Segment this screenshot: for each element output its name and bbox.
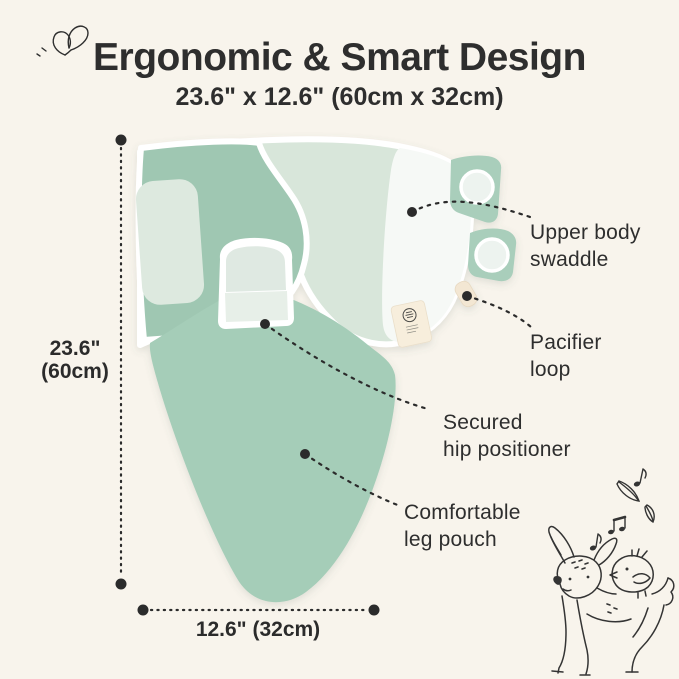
dot-hip — [260, 319, 270, 329]
hip-tab-velcro-patch — [225, 291, 288, 322]
page-title: Ergonomic & Smart Design — [0, 36, 679, 80]
callout-secured-hip-positioner: Secured hip positioner — [443, 409, 571, 463]
callout-comfortable-leg-pouch: Comfortable leg pouch — [404, 499, 521, 553]
dot-upper-body — [407, 207, 417, 217]
fastening-snap-bottom — [476, 239, 508, 271]
wing-velcro-patch — [135, 178, 205, 306]
height-dimension-label: 23.6" (60cm) — [24, 337, 126, 383]
music-notes-icon — [589, 469, 654, 551]
callout-pacifier-loop: Pacifier loop — [530, 329, 602, 383]
dot-pouch — [300, 449, 310, 459]
fastening-snap-top — [461, 171, 493, 203]
width-dimension-label: 12.6" (32cm) — [133, 618, 383, 641]
height-value-metric: (60cm) — [24, 360, 126, 383]
height-value: 23.6" — [24, 337, 126, 360]
infographic-canvas: Ergonomic & Smart Design 23.6" x 12.6" (… — [0, 0, 679, 679]
dot-pacifier — [462, 291, 472, 301]
hip-tab-top — [226, 246, 286, 292]
deer-and-bird-icon — [549, 527, 674, 675]
callout-upper-body-swaddle: Upper body swaddle — [530, 219, 641, 273]
width-dimension-line — [138, 605, 380, 616]
size-subtitle: 23.6" x 12.6" (60cm x 32cm) — [0, 83, 679, 112]
